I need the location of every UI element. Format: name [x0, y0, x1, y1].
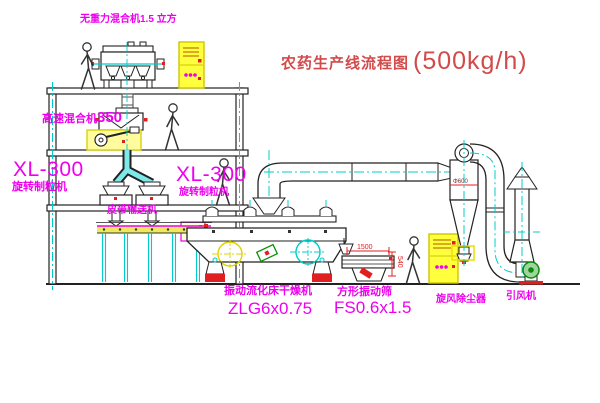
granulator-left	[100, 182, 132, 226]
person-top-floor	[82, 43, 95, 89]
control-cabinet-top	[179, 42, 204, 88]
cabinet-marking	[435, 265, 448, 269]
label-fan: 引风机	[506, 292, 536, 302]
dryer-feed-funnel	[253, 198, 285, 214]
label-granulator-right-name: 旋转制粒机	[179, 188, 229, 198]
label-sieve-model: FS0.6x1.5	[334, 299, 412, 316]
label-granulator-left-name: 旋转制粒机	[12, 182, 67, 193]
drawing-title: 农药生产线流程图 (500kg/h)	[281, 47, 528, 76]
person-ground	[407, 237, 420, 283]
dim-sieve-height: 540	[396, 256, 403, 268]
indicator-dot	[198, 59, 202, 63]
title-capacity: (500kg/h)	[413, 47, 528, 76]
floor-slab-1	[47, 88, 248, 94]
label-dryer-model: ZLG6x0.75	[228, 300, 312, 317]
floor-slab-2	[47, 150, 248, 156]
label-sieve-name: 方形振动筛	[337, 287, 392, 298]
control-cabinet-bottom	[429, 234, 458, 283]
dim-sieve-length: 1500	[357, 244, 373, 251]
cad-drawing-canvas: 1500 540 Φ600 农药生产线流程图 (500kg/h) 无重力混合机1…	[0, 0, 600, 403]
title-text: 农药生产线流程图	[281, 52, 409, 76]
cabinet-marking	[184, 73, 197, 77]
fan-base	[519, 281, 543, 285]
label-granulator-right-model: XL-300	[176, 164, 247, 185]
person-second-floor	[166, 104, 179, 150]
label-cyclone: 旋风除尘器	[436, 295, 486, 305]
label-gravity-mixer: 无重力混合机1.5 立方	[80, 15, 177, 25]
gravity-mixer-machine	[91, 42, 165, 88]
label-speed-mixer: 高速混合机350	[42, 110, 122, 125]
label-belt-conveyor: 皮带输送机	[107, 206, 157, 216]
label-granulator-left-model: XL-300	[13, 159, 84, 180]
granulator-right	[136, 182, 168, 226]
label-dryer-name: 振动流化床干燥机	[224, 286, 312, 297]
dim-cyclone-diameter: Φ600	[453, 179, 468, 185]
